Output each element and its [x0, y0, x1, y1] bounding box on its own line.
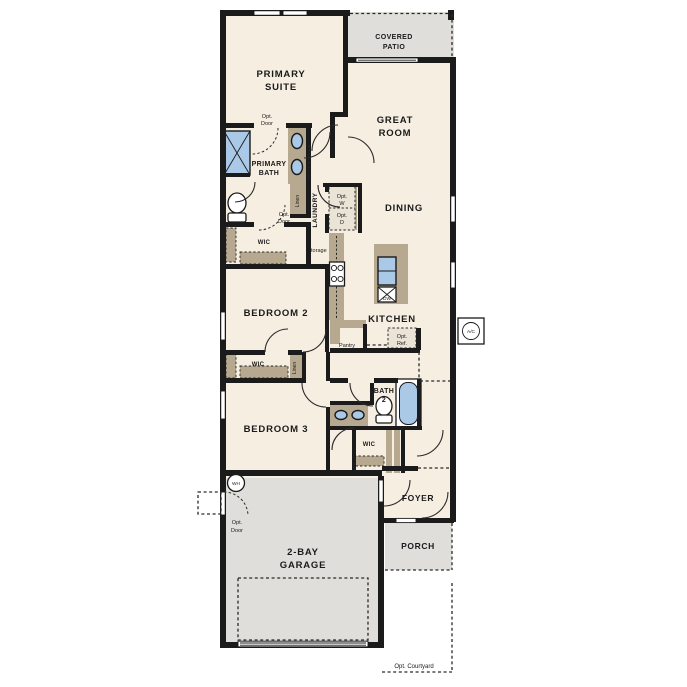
sink-icon	[292, 134, 303, 149]
label-bedroom2: BEDROOM 2	[244, 308, 309, 319]
wall	[222, 123, 254, 128]
wall	[222, 264, 329, 269]
label-opt-dryer: Opt.	[337, 213, 348, 219]
wall	[222, 173, 250, 177]
label-bedroom3: BEDROOM 3	[244, 424, 309, 435]
label-opt-door: Opt.	[279, 212, 290, 218]
label-covered-patio: COVERED	[375, 34, 412, 41]
label-storage: Storage	[307, 248, 326, 254]
wall	[450, 57, 456, 522]
label-primary-bath: BATH	[259, 170, 280, 177]
window	[451, 196, 455, 222]
floor-plan-drawing: WH A/C COVERED PATIO PRIMARY SUITE GREAT…	[0, 0, 687, 687]
wall	[330, 378, 348, 383]
wall	[288, 350, 302, 355]
garage-door	[238, 641, 368, 647]
wall	[374, 378, 398, 383]
wall	[325, 214, 329, 233]
wall	[326, 407, 330, 473]
label-dishwasher: DW	[383, 296, 391, 302]
wall	[417, 379, 421, 428]
wall	[330, 401, 374, 405]
label-porch: PORCH	[401, 541, 435, 551]
sink-icon	[352, 411, 364, 420]
label-linen: Linen	[292, 362, 298, 374]
wall	[382, 466, 418, 471]
pantry-shelf-side	[330, 320, 340, 344]
cooktop-icon	[330, 262, 345, 286]
wall	[220, 470, 382, 476]
label-opt-washer: W	[339, 201, 345, 207]
front-door-opening	[396, 518, 416, 522]
sink-icon	[335, 411, 347, 420]
label-foyer: FOYER	[402, 493, 434, 503]
water-heater-icon: WH	[228, 475, 245, 492]
island-sink-icon	[378, 257, 396, 285]
label-primary-suite: PRIMARY	[256, 69, 305, 80]
wall	[330, 426, 422, 430]
window	[221, 391, 225, 419]
ac-unit-icon: A/C	[458, 318, 484, 344]
label-laundry: LAUNDRY	[312, 192, 319, 227]
wall	[382, 518, 454, 523]
label-covered-patio: PATIO	[383, 44, 406, 51]
floor-plan-page: WH A/C COVERED PATIO PRIMARY SUITE GREAT…	[0, 0, 687, 687]
wic1-shelf-side	[226, 228, 236, 262]
label-opt-door: Opt.	[262, 114, 273, 120]
wall	[222, 378, 306, 383]
label-wic: WIC	[252, 362, 265, 368]
label-linen: Linen	[295, 195, 301, 207]
window	[221, 312, 225, 340]
label-opt-ref: Ref.	[397, 341, 408, 347]
sliding-glass-door	[356, 58, 418, 62]
label-garage: 2-BAY	[287, 547, 319, 558]
svg-text:WH: WH	[232, 481, 241, 487]
label-bath2: BATH	[374, 388, 395, 395]
label-pantry: Pantry	[339, 343, 355, 349]
toilet-icon	[228, 193, 246, 222]
wall	[222, 222, 254, 227]
wall	[222, 350, 265, 355]
wall	[363, 324, 367, 348]
window	[283, 11, 307, 15]
wall	[323, 183, 362, 187]
wall	[343, 12, 348, 112]
wall	[306, 222, 311, 269]
svg-text:A/C: A/C	[467, 329, 476, 335]
label-wic: WIC	[363, 442, 376, 448]
label-kitchen: KITCHEN	[368, 314, 416, 325]
garage-entry-opening	[379, 480, 383, 502]
wall	[352, 430, 356, 473]
label-great-room: ROOM	[379, 128, 412, 139]
sink-icon	[292, 160, 303, 175]
shower-icon	[224, 131, 250, 175]
label-opt-dryer: D	[340, 220, 344, 226]
wic3-shelf	[354, 456, 384, 466]
wic1-shelf-bottom	[240, 252, 286, 264]
label-primary-bath: PRIMARY	[252, 161, 287, 168]
label-garage: GARAGE	[280, 560, 327, 571]
label-opt-door: Opt.	[232, 520, 243, 526]
wall	[448, 10, 454, 20]
label-dining: DINING	[385, 203, 423, 214]
label-opt-ref: Opt.	[397, 334, 408, 340]
label-opt-door: Door	[231, 528, 243, 534]
opt-door-landing-dashed	[198, 492, 221, 514]
wic2-shelf-side	[226, 354, 236, 378]
wall	[416, 328, 421, 350]
window	[451, 262, 455, 288]
label-wic: WIC	[258, 240, 271, 246]
label-opt-washer: Opt.	[337, 194, 348, 200]
wall	[290, 214, 311, 218]
label-bath2: 2	[382, 397, 386, 404]
label-opt-courtyard: Opt. Courtyard	[394, 664, 433, 670]
label-opt-door: Door	[278, 219, 290, 225]
wall	[330, 112, 335, 158]
wall	[358, 183, 362, 233]
wall	[325, 269, 329, 352]
wall	[302, 352, 306, 381]
label-great-room: GREAT	[377, 115, 414, 126]
wall	[326, 352, 330, 381]
window	[254, 11, 280, 15]
label-primary-suite: SUITE	[265, 82, 297, 93]
label-opt-door: Door	[261, 121, 273, 127]
